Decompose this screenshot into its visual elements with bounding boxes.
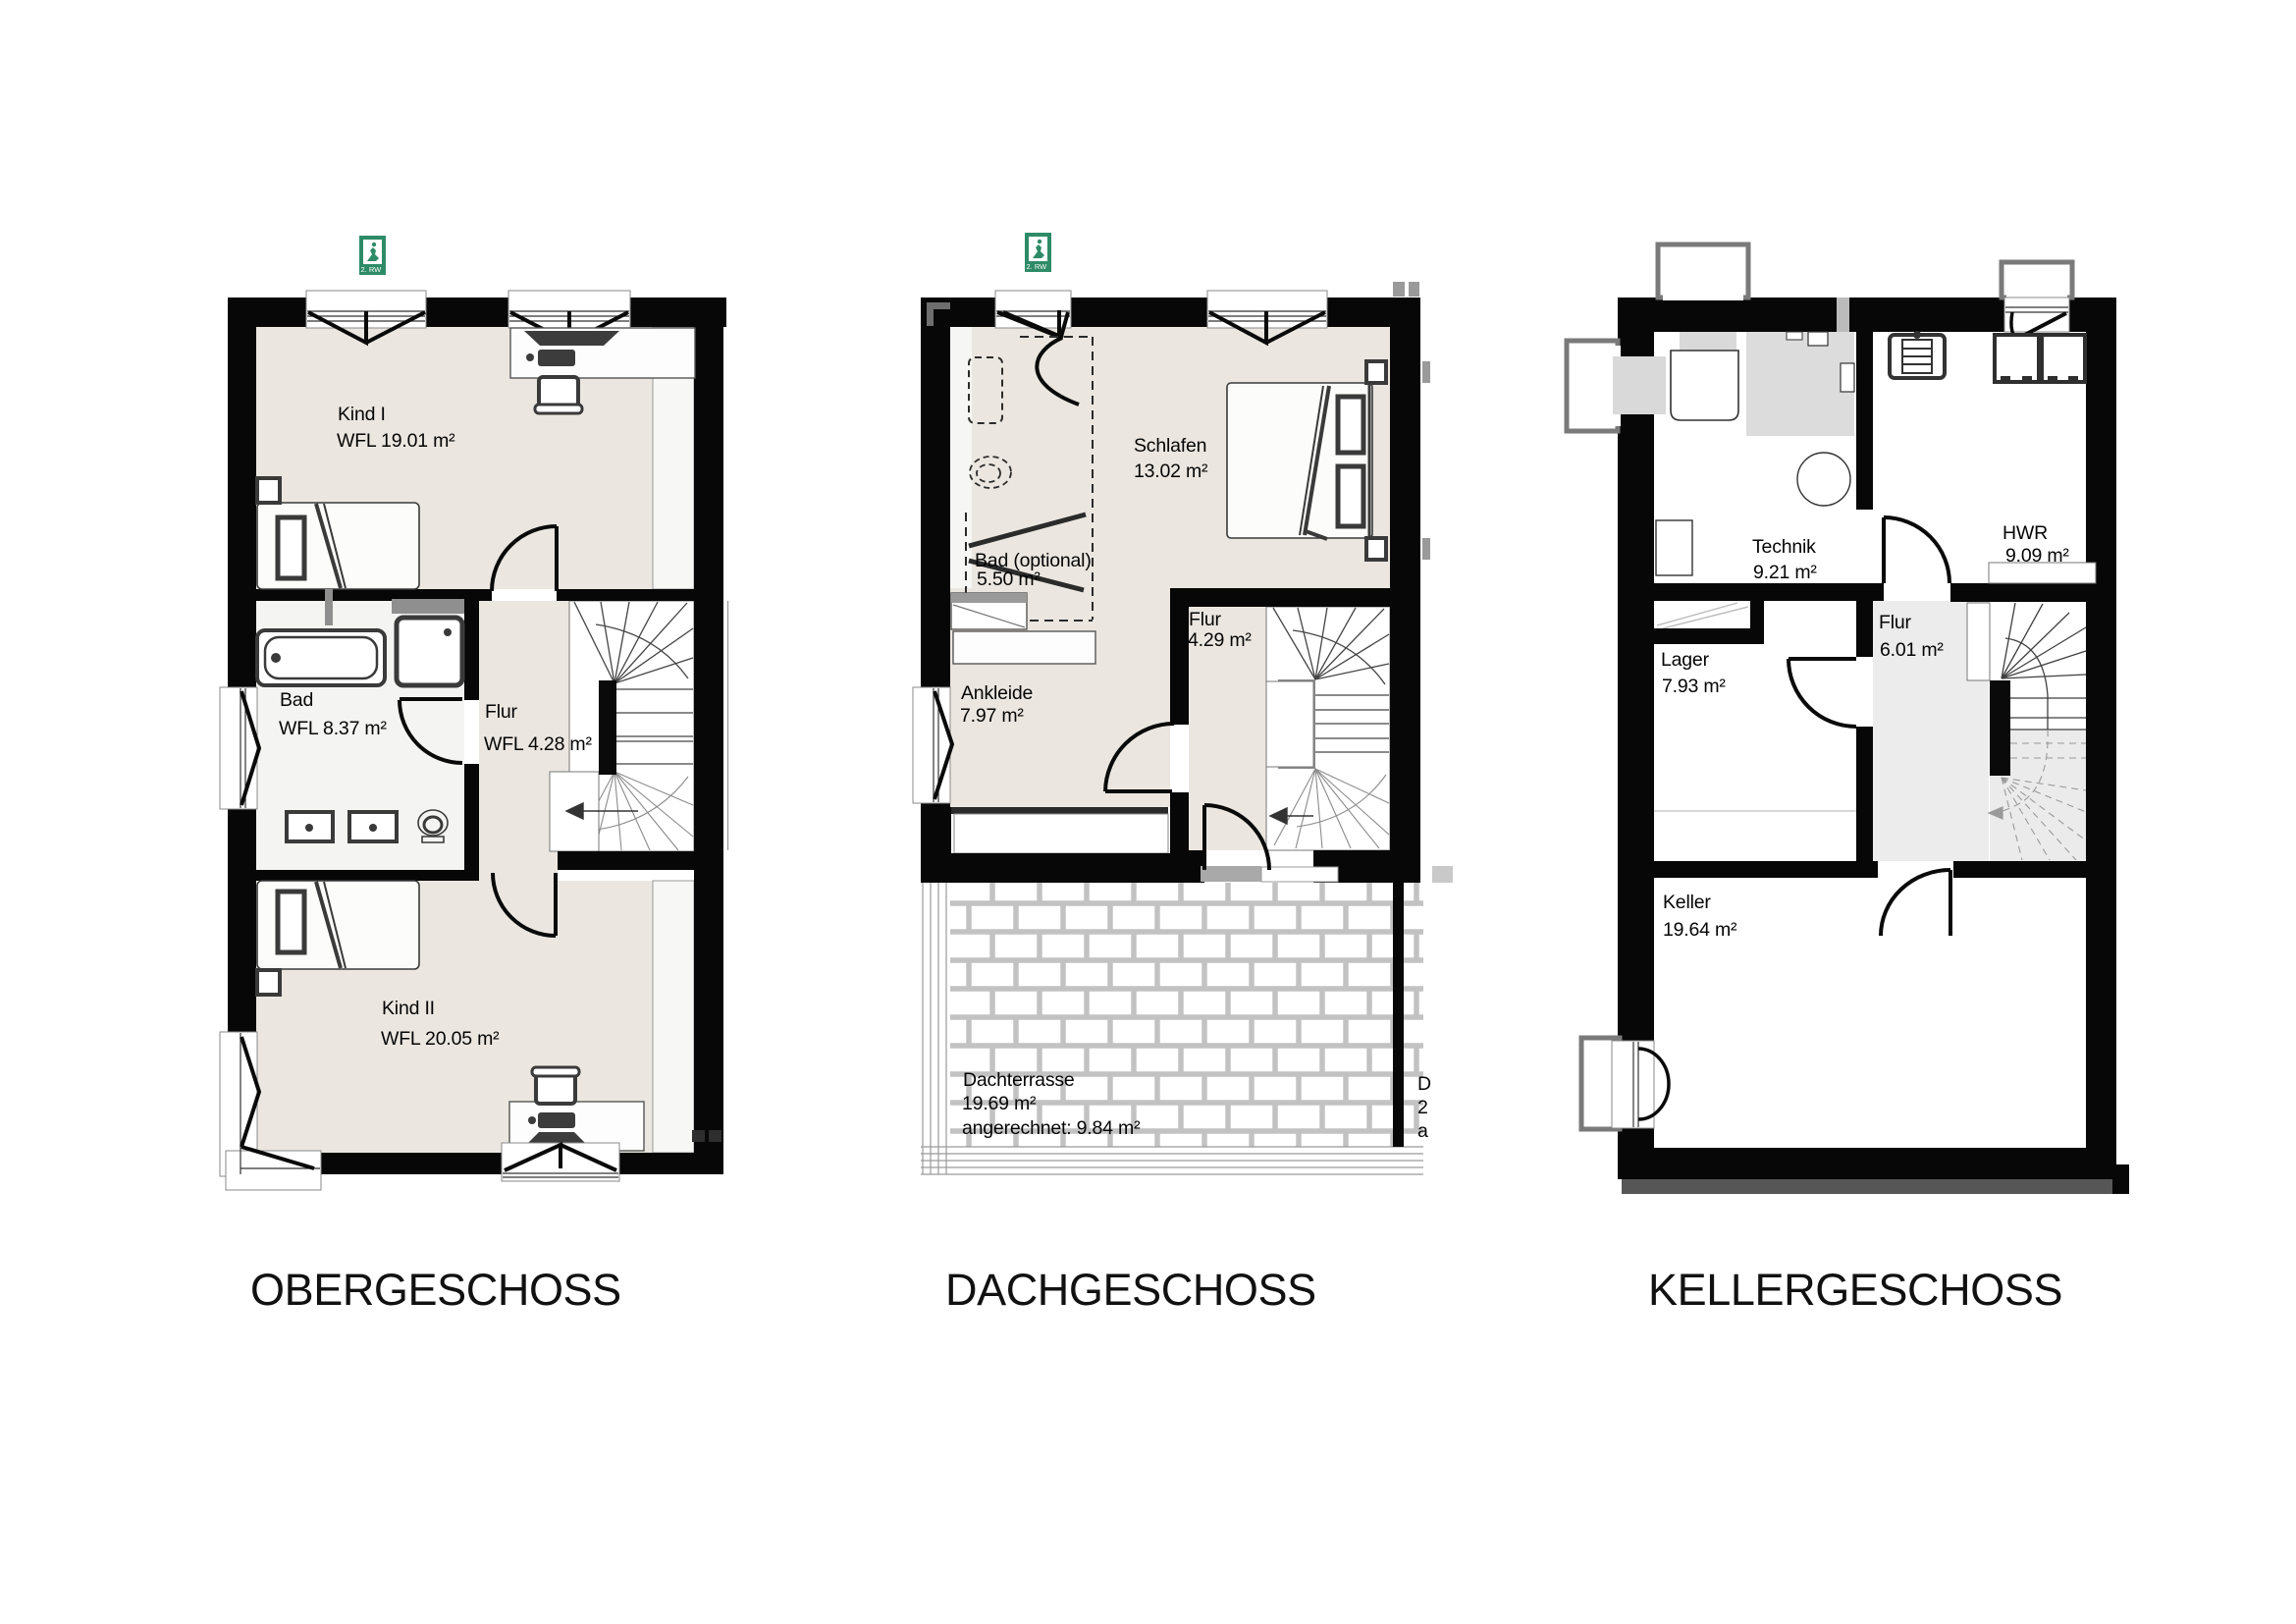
svg-text:a: a [1417,1120,1428,1142]
svg-text:KELLERGESCHOSS: KELLERGESCHOSS [1648,1265,2062,1315]
svg-text:Ankleide: Ankleide [961,682,1033,704]
svg-text:9.21 m²: 9.21 m² [1753,562,1817,583]
svg-text:5.50 m²: 5.50 m² [977,568,1041,590]
svg-text:Kind I: Kind I [338,404,386,425]
svg-text:HWR: HWR [2002,522,2048,544]
svg-text:Bad: Bad [280,689,313,711]
svg-text:13.02 m²: 13.02 m² [1134,460,1208,482]
svg-text:Flur: Flur [1189,609,1221,630]
svg-text:Technik: Technik [1752,536,1816,558]
svg-text:6.01 m²: 6.01 m² [1880,639,1944,661]
svg-text:7.97 m²: 7.97 m² [960,705,1024,727]
svg-text:2. RW: 2. RW [1027,262,1048,271]
svg-text:angerechnet: 9.84 m²: angerechnet: 9.84 m² [962,1117,1141,1139]
svg-text:OBERGESCHOSS: OBERGESCHOSS [250,1265,621,1315]
svg-text:D: D [1417,1073,1431,1095]
svg-text:WFL 20.05 m²: WFL 20.05 m² [381,1028,500,1050]
svg-text:2. RW: 2. RW [361,265,383,274]
svg-text:19.64 m²: 19.64 m² [1663,919,1737,941]
svg-text:4.29 m²: 4.29 m² [1188,629,1252,651]
svg-text:2: 2 [1417,1097,1428,1118]
svg-text:DACHGESCHOSS: DACHGESCHOSS [945,1265,1316,1315]
svg-text:WFL 8.37 m²: WFL 8.37 m² [279,718,387,739]
svg-text:9.09 m²: 9.09 m² [2005,545,2069,567]
svg-text:7.93 m²: 7.93 m² [1662,676,1726,697]
svg-text:19.69 m²: 19.69 m² [962,1093,1037,1114]
svg-text:Flur: Flur [485,701,517,723]
svg-text:WFL 4.28 m²: WFL 4.28 m² [484,733,592,755]
svg-text:Dachterrasse: Dachterrasse [963,1069,1075,1091]
svg-text:Kind II: Kind II [382,998,435,1019]
svg-text:Schlafen: Schlafen [1134,435,1206,457]
svg-text:Lager: Lager [1661,649,1710,671]
svg-text:WFL 19.01 m²: WFL 19.01 m² [337,430,455,452]
svg-text:Flur: Flur [1879,612,1911,633]
svg-text:Keller: Keller [1663,892,1711,913]
